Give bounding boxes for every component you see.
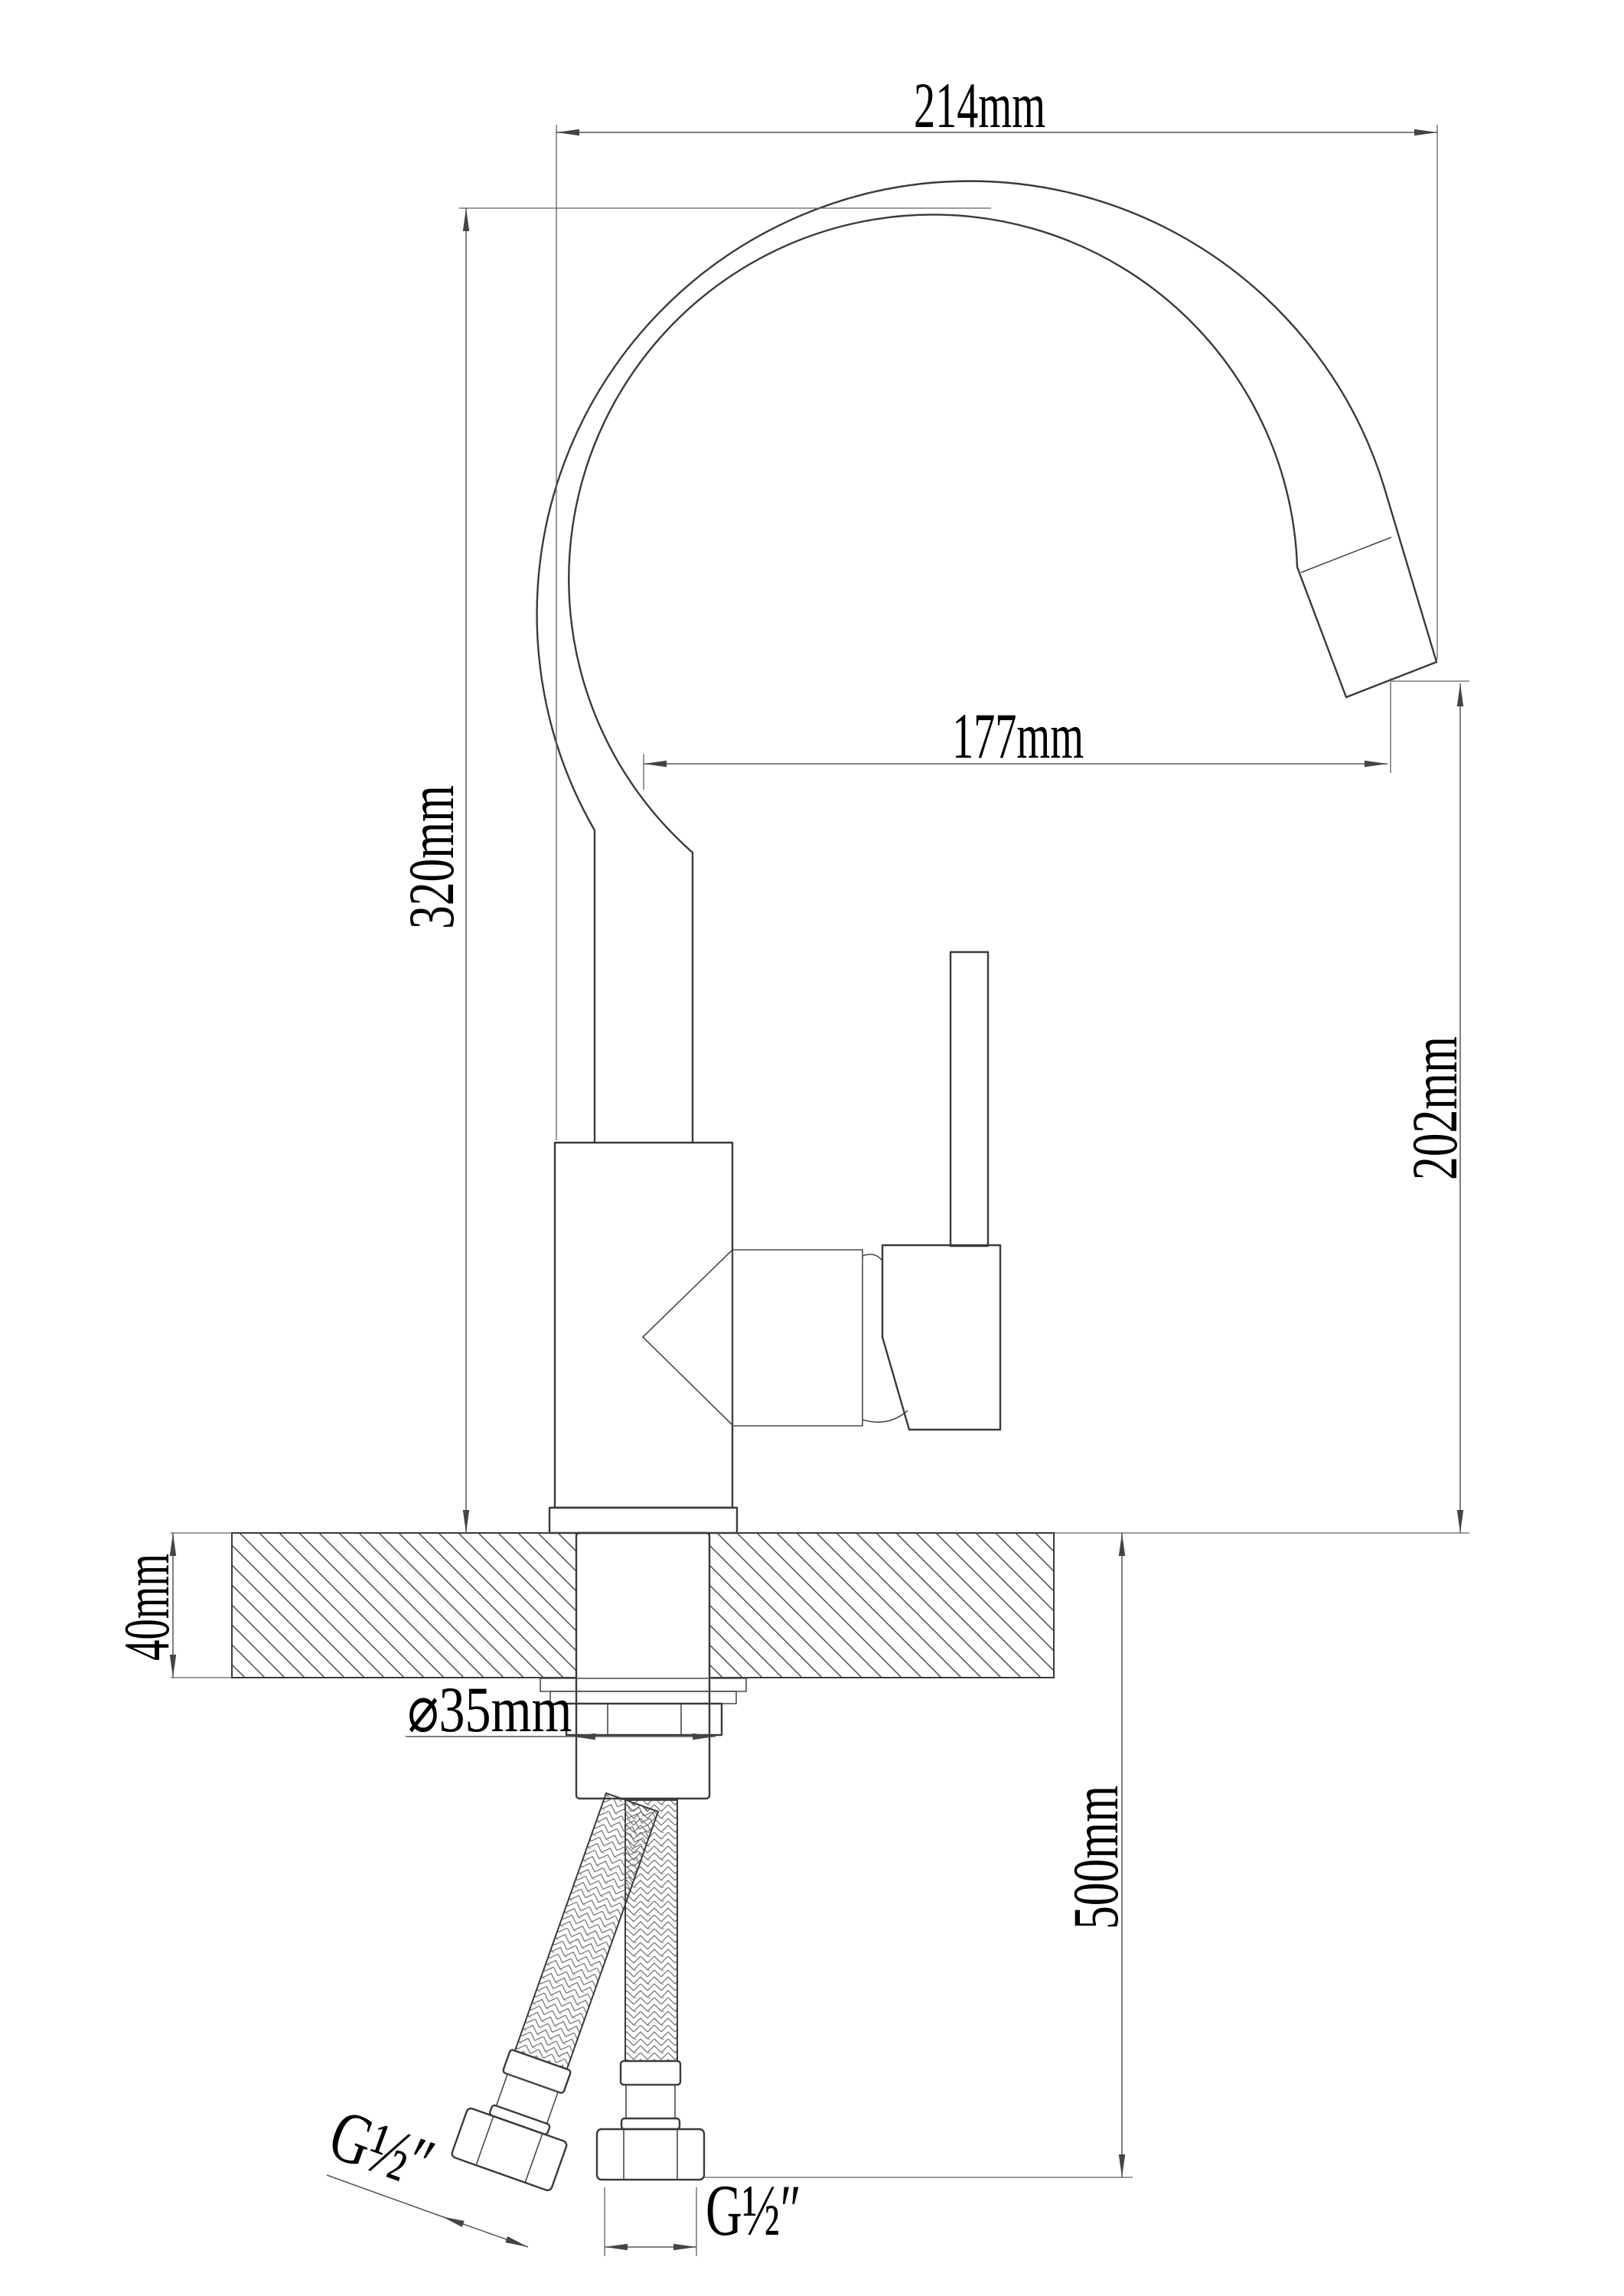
countertop-slab-right bbox=[709, 1533, 1054, 1678]
hose-hex-nut bbox=[451, 2107, 568, 2191]
dim-label-40: 40mm bbox=[111, 1554, 183, 1661]
dim-label-320: 320mm bbox=[396, 785, 468, 929]
hose-ring bbox=[489, 2105, 550, 2135]
aerator-joint-line bbox=[1301, 537, 1391, 572]
faucet-body bbox=[555, 1143, 732, 1508]
thread-label-bottom: G½″ bbox=[706, 2170, 801, 2251]
handle-housing bbox=[882, 1245, 1000, 1430]
handle-connector bbox=[732, 1250, 863, 1426]
technical-drawing-page: 214mm 320mm 177mm 202mm 40mm ⌀35mm 500mm bbox=[0, 0, 1624, 2296]
hose-ferrule bbox=[621, 2061, 680, 2085]
faucet-technical-drawing: 214mm 320mm 177mm 202mm 40mm ⌀35mm 500mm bbox=[0, 0, 1624, 2296]
dim-label-214: 214mm bbox=[914, 70, 1045, 142]
countertop bbox=[171, 1533, 1469, 1678]
countertop-slab-left bbox=[232, 1533, 576, 1678]
hose-tube bbox=[626, 2085, 675, 2118]
dim-label-diameter-35: ⌀35mm bbox=[408, 1674, 572, 1746]
dimension-thread-left: G½″ bbox=[319, 2093, 528, 2247]
dim-label-500: 500mm bbox=[1060, 1786, 1132, 1929]
thread-label-left: G½″ bbox=[319, 2093, 444, 2205]
mounting-nut bbox=[566, 1704, 722, 1735]
connector-housing-fillet-bottom bbox=[863, 1411, 908, 1422]
connector-housing-fillet-top bbox=[863, 1254, 882, 1261]
dimension-counter-thickness: 40mm bbox=[111, 1533, 183, 1678]
dim-label-202: 202mm bbox=[1399, 1036, 1471, 1180]
washer-plate-2 bbox=[550, 1691, 736, 1704]
base-plate bbox=[549, 1508, 737, 1533]
hose-nut-facet-right bbox=[525, 2134, 543, 2183]
dimension-spout-width: 214mm bbox=[556, 70, 1437, 1140]
mounting-shank bbox=[576, 1533, 709, 1799]
handle-lever bbox=[951, 952, 988, 1246]
hose-hex-nut bbox=[597, 2129, 704, 2180]
dim-line bbox=[442, 2216, 528, 2247]
hose-nut-facet-left bbox=[476, 2116, 494, 2165]
dimension-thread-bottom: G½″ bbox=[605, 2170, 801, 2256]
hose-ring bbox=[621, 2118, 680, 2129]
faucet-outline bbox=[537, 181, 1436, 1533]
dim-label-177: 177mm bbox=[952, 700, 1084, 772]
dimension-outlet-height: 202mm bbox=[1391, 681, 1471, 1533]
spout-outline bbox=[537, 181, 1436, 1143]
connector-notch bbox=[643, 1250, 732, 1425]
dimension-spout-reach: 177mm bbox=[644, 678, 1391, 790]
